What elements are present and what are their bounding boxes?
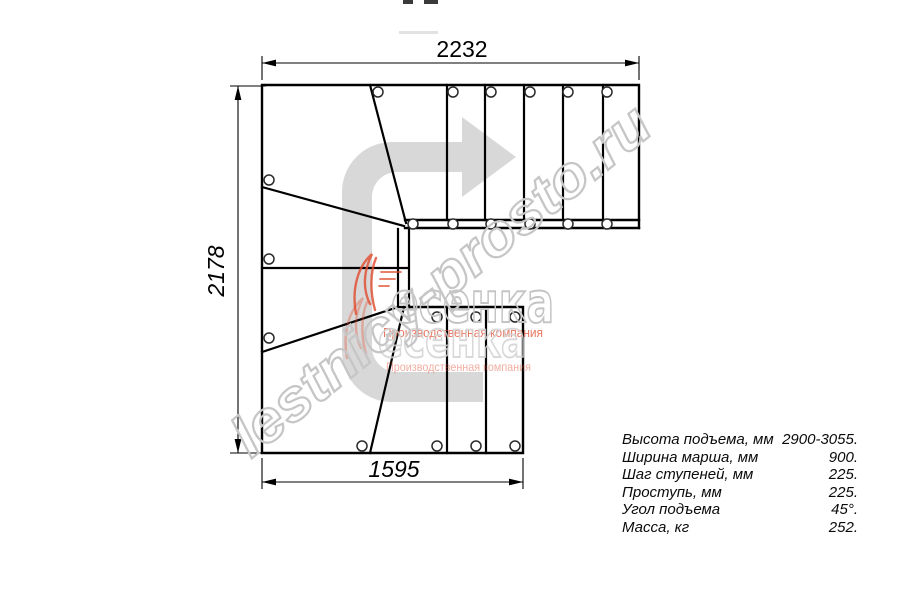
spec-label: Проступь, мм <box>622 484 722 502</box>
spec-value: 225. <box>829 484 858 502</box>
spec-value: 2900-3055. <box>782 431 858 449</box>
spec-value: 45°. <box>831 501 858 519</box>
spec-label: Угол подъема <box>622 501 720 519</box>
dimension-top-label: 2232 <box>436 36 487 62</box>
spec-row: Ширина марша, мм 900. <box>622 449 858 467</box>
spec-row: Масса, кг 252. <box>622 519 858 537</box>
spec-label: Масса, кг <box>622 519 689 537</box>
spec-value: 252. <box>829 519 858 537</box>
dimension-left-label: 2178 <box>203 245 229 297</box>
spec-label: Высота подъема, мм <box>622 431 774 449</box>
spec-label: Ширина марша, мм <box>622 449 758 467</box>
spec-row: Шаг ступеней, мм 225. <box>622 466 858 484</box>
spec-value: 225. <box>829 466 858 484</box>
spec-label: Шаг ступеней, мм <box>622 466 753 484</box>
cropped-text-artifact <box>399 0 438 34</box>
spec-row: Угол подъема 45°. <box>622 501 858 519</box>
dimension-bottom-label: 1595 <box>368 456 419 482</box>
spec-row: Высота подъема, мм 2900-3055. <box>622 431 858 449</box>
dimension-bottom: 1595 <box>262 456 523 489</box>
spec-table: Высота подъема, мм 2900-3055. Ширина мар… <box>622 431 858 536</box>
spec-row: Проступь, мм 225. <box>622 484 858 502</box>
dimension-top: 2232 <box>262 36 639 80</box>
staircase-plan-page: 2232 2178 1595 есен <box>0 0 900 600</box>
spec-value: 900. <box>829 449 858 467</box>
logo-tagline-echo: Производственная компания <box>386 360 531 374</box>
